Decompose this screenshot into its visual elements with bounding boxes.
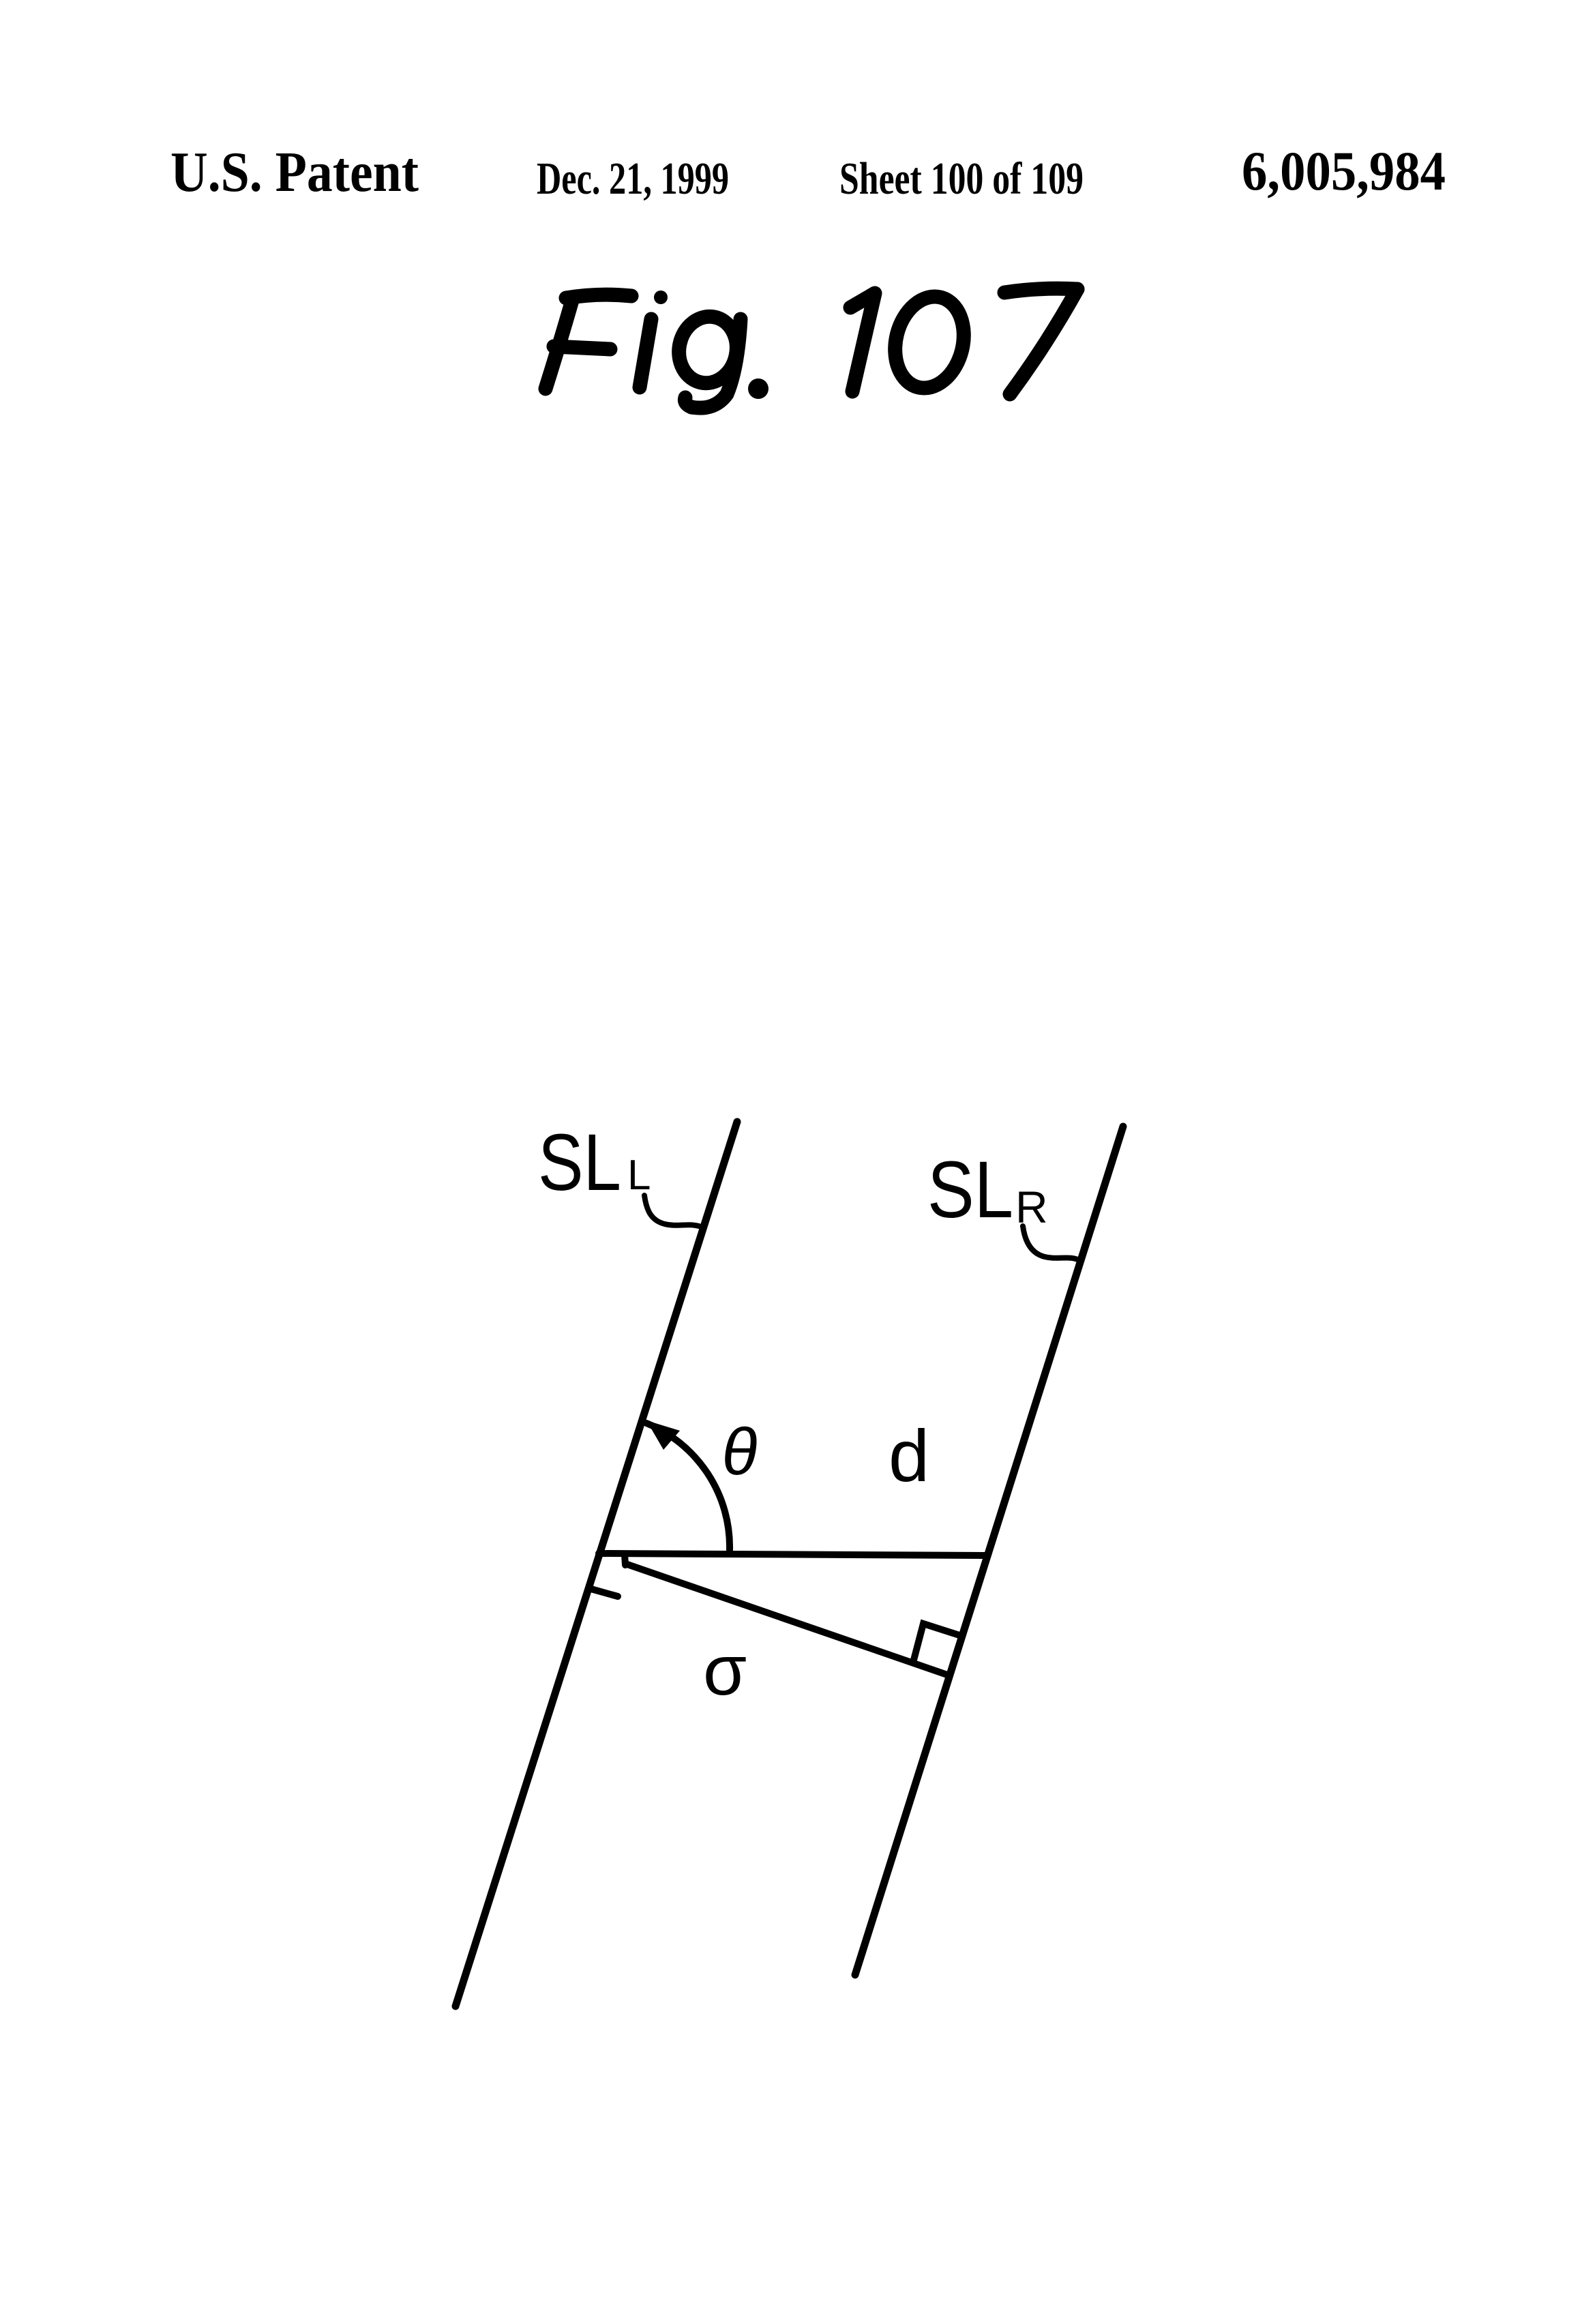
svg-text:6,005,984: 6,005,984 — [1242, 140, 1446, 202]
svg-text:U.S. Patent: U.S. Patent — [170, 140, 419, 204]
svg-text:Dec. 21, 1999: Dec. 21, 1999 — [537, 153, 729, 204]
svg-text:SL: SL — [927, 1145, 1013, 1235]
svg-text:σ: σ — [703, 1631, 747, 1710]
svg-text:L: L — [627, 1152, 651, 1199]
svg-text:R: R — [1015, 1182, 1048, 1232]
svg-text:Sheet 100 of 109: Sheet 100 of 109 — [839, 153, 1084, 204]
svg-text:SL: SL — [538, 1118, 621, 1208]
svg-text:d: d — [889, 1414, 929, 1497]
